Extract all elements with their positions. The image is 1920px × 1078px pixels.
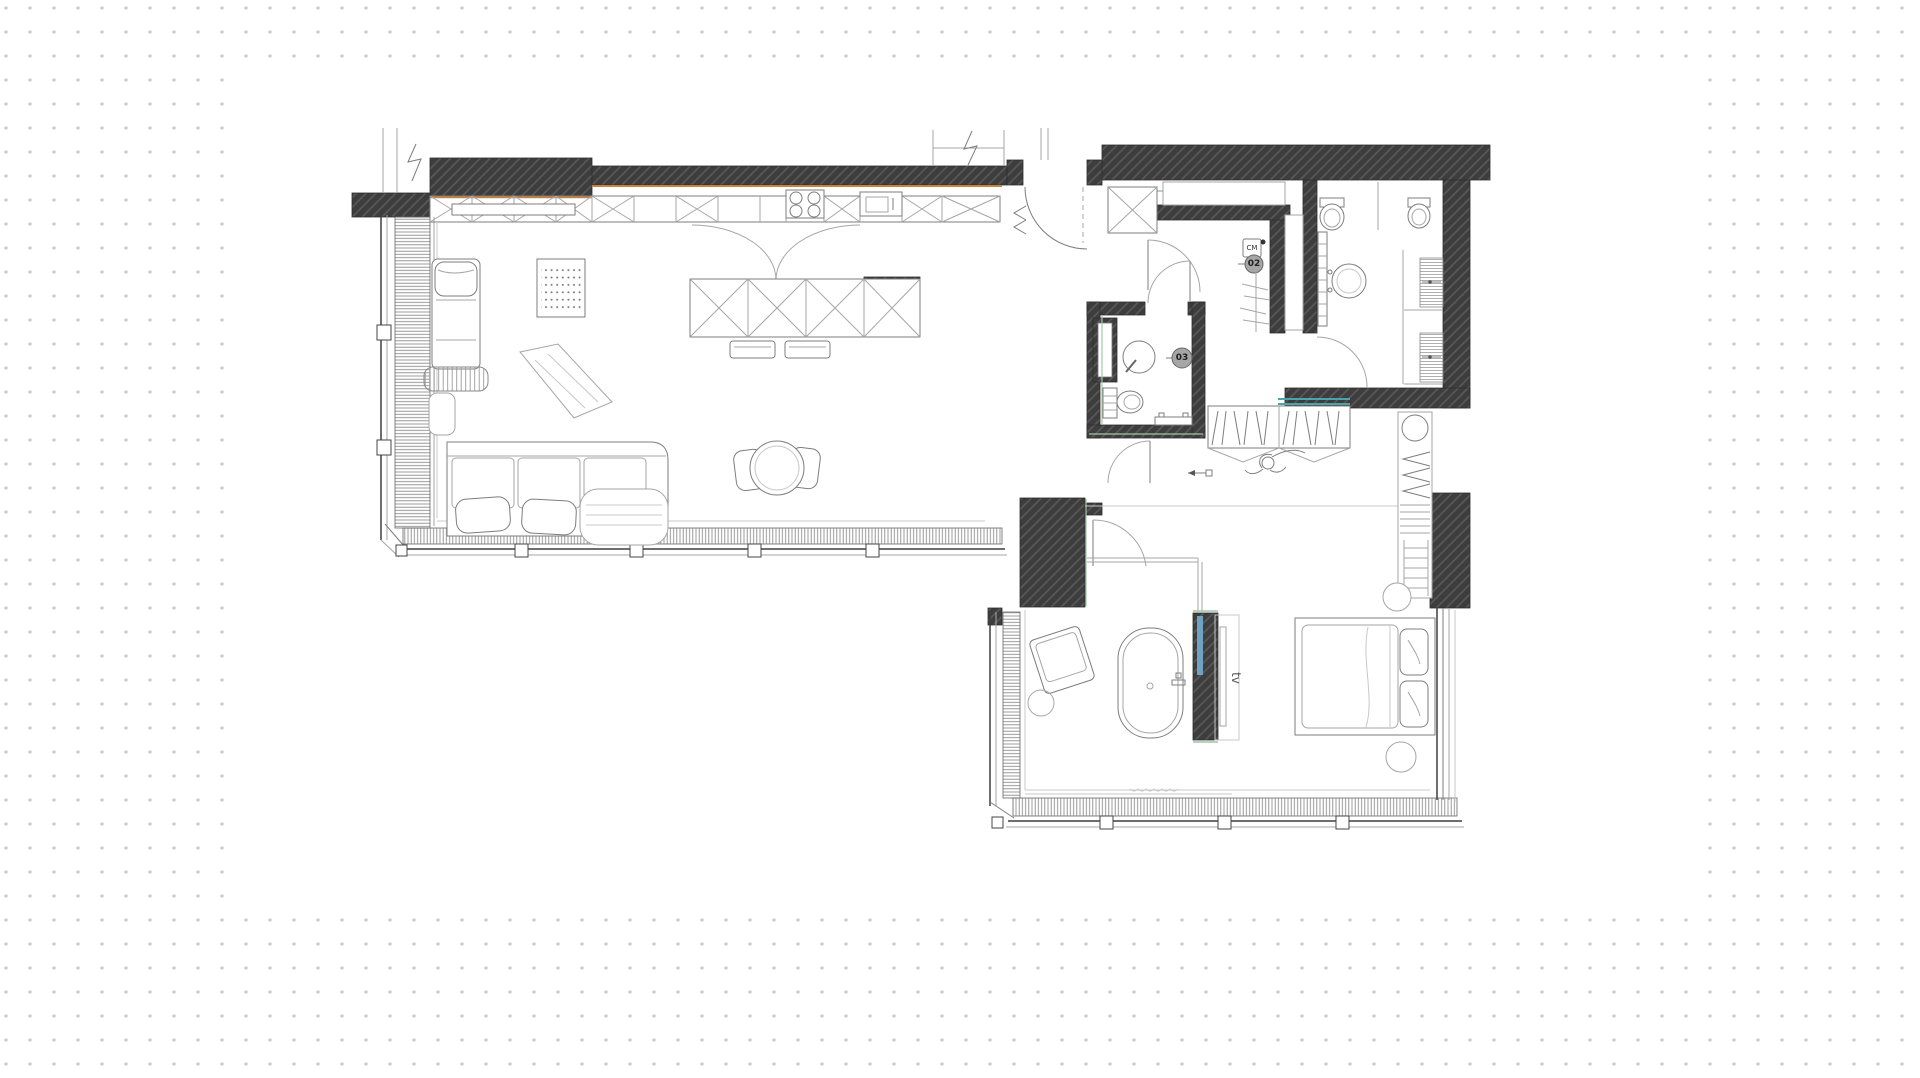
mullion	[1100, 816, 1113, 829]
shoe-cabinet	[1108, 187, 1157, 233]
tall-cabinet	[1285, 215, 1303, 330]
mullion	[1218, 816, 1231, 829]
striped-ottoman	[424, 367, 488, 391]
mullion	[377, 440, 391, 455]
door-swing	[1108, 441, 1150, 483]
bidet	[1408, 198, 1430, 228]
wall-corner-topleft	[352, 193, 430, 217]
entry-jamb-left	[1007, 160, 1023, 185]
towel-ladder	[1318, 232, 1327, 326]
dining-table	[750, 441, 804, 495]
entry-jamb-right	[1087, 160, 1102, 185]
direction-arrow	[1188, 470, 1212, 476]
door-swing	[1148, 240, 1200, 292]
toilet	[1103, 388, 1143, 418]
peg-panel	[537, 259, 585, 317]
badge-03: 03	[1166, 348, 1192, 368]
armchair	[1029, 625, 1096, 694]
door-swing	[1093, 520, 1146, 566]
wall-bath03-right	[1192, 302, 1205, 438]
column-cap	[1085, 503, 1102, 515]
mullion	[515, 544, 528, 557]
design-canvas[interactable]: CM 02	[0, 0, 1920, 1078]
floor-plan-drawing: CM 02	[0, 0, 1920, 1078]
glass-partition	[1087, 558, 1202, 612]
kitchen-island	[690, 279, 920, 358]
wall-right-exterior	[1443, 180, 1470, 408]
window-band-bedroom-left	[1003, 612, 1020, 798]
column	[1020, 498, 1085, 607]
shower-niche	[1098, 323, 1112, 377]
mullion	[377, 325, 391, 340]
bench	[1155, 413, 1192, 425]
living-room	[424, 222, 985, 545]
toilet	[1320, 198, 1344, 230]
shower-mats	[1420, 258, 1443, 382]
bathroom-main	[1317, 182, 1443, 387]
chaise-cushion	[580, 489, 668, 545]
badge-02: 02	[1238, 255, 1263, 273]
nightstand	[1386, 742, 1416, 772]
figure-sketch	[1245, 450, 1305, 473]
wall-bedroom-right	[1430, 493, 1470, 608]
wall-bath03-bottom	[1087, 425, 1205, 438]
bathroom-03: 03	[1089, 261, 1203, 434]
bar-stool	[730, 341, 775, 358]
break-mark	[408, 144, 421, 181]
washing-machine: CM	[1243, 239, 1266, 257]
hanging-rail	[1240, 270, 1270, 332]
double-door-swing	[776, 225, 860, 280]
door-swing	[1148, 261, 1190, 303]
wall-top-right-wing	[1102, 145, 1490, 180]
bed	[1295, 618, 1435, 735]
wall-closet	[1270, 220, 1285, 333]
closet-badge-label: 02	[1248, 259, 1261, 269]
kitchen-sink	[860, 192, 902, 216]
entry-arrow	[1014, 206, 1026, 220]
wall-vestibule	[1156, 205, 1290, 220]
bathroom-badge-label: 03	[1176, 353, 1189, 363]
tv-panel	[1220, 627, 1226, 726]
entry-arrow	[1014, 220, 1026, 234]
round-basin	[1328, 264, 1366, 298]
bar-stool	[785, 341, 830, 358]
leaning-mirror	[520, 344, 612, 418]
nightstand	[1383, 583, 1411, 611]
bathtub	[1118, 628, 1185, 738]
tv-wall-blue-strip	[1197, 616, 1203, 675]
cooktop	[786, 190, 824, 218]
tv-label: tv	[1229, 672, 1243, 684]
mullion	[630, 544, 643, 557]
entry-door-swing	[1025, 187, 1087, 249]
kitchen	[430, 186, 1002, 358]
wall-bath-left	[1303, 180, 1317, 333]
mullion	[866, 544, 879, 557]
dining-set	[733, 441, 822, 495]
mullion	[1336, 816, 1349, 829]
corner-mullion	[396, 545, 407, 556]
tv-wall	[1193, 613, 1218, 740]
washing-machine-label: CM	[1247, 244, 1258, 252]
side-table	[1028, 690, 1054, 716]
lounge-chair	[432, 259, 480, 369]
mullion	[748, 544, 761, 557]
window-band-bedroom-bottom	[1013, 798, 1457, 816]
wall-niche	[1163, 182, 1285, 205]
wall-top-thick	[430, 158, 592, 196]
door-swing	[1317, 337, 1367, 387]
double-door-swing	[692, 225, 776, 280]
shelf-tower	[1398, 412, 1432, 598]
corner-mullion	[992, 817, 1003, 828]
media-console	[452, 204, 575, 215]
pillow	[1400, 681, 1428, 727]
floor-cushion	[429, 393, 455, 435]
sofa	[447, 442, 668, 545]
round-basin	[1123, 341, 1155, 373]
wall-kitchen-top	[592, 166, 1007, 185]
pillow	[1400, 629, 1428, 675]
